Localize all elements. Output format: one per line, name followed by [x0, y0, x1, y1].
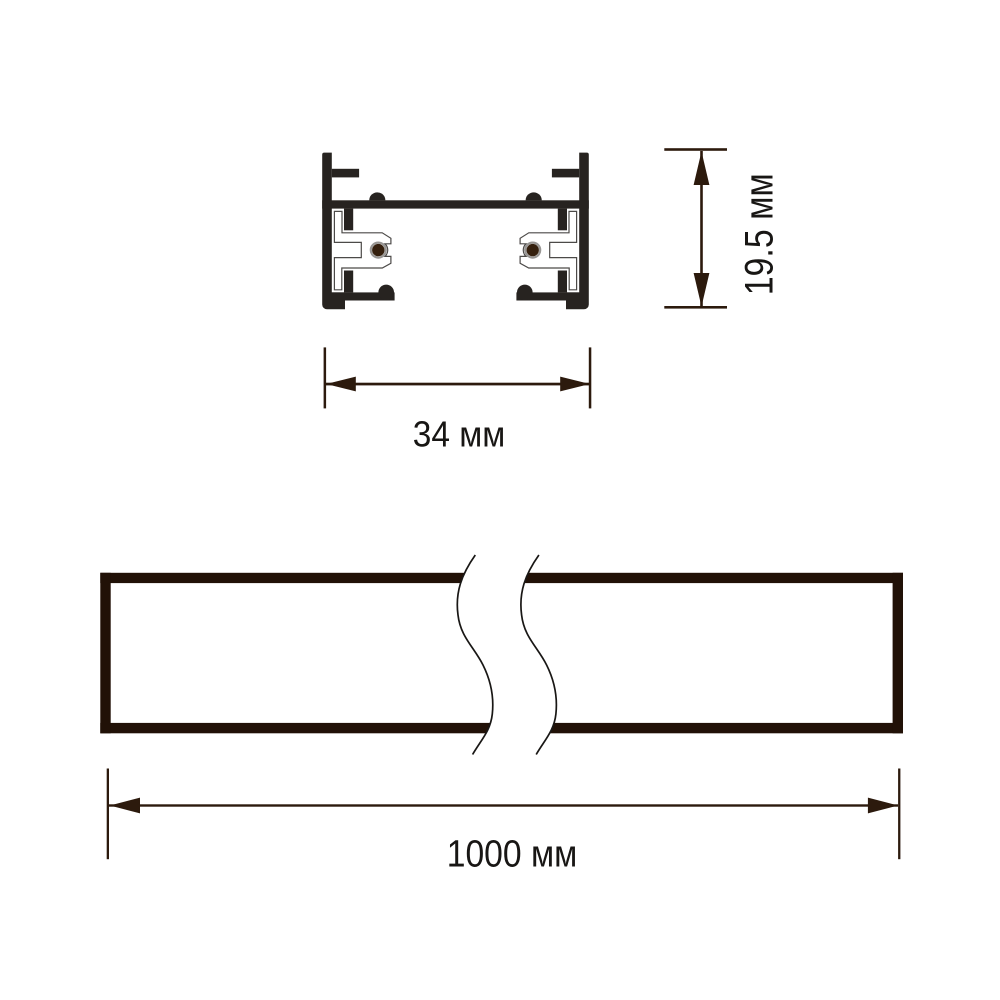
svg-text:34 мм: 34 мм: [413, 414, 506, 455]
svg-text:1000 мм: 1000 мм: [447, 833, 578, 875]
svg-text:19.5 мм: 19.5 мм: [738, 173, 782, 295]
